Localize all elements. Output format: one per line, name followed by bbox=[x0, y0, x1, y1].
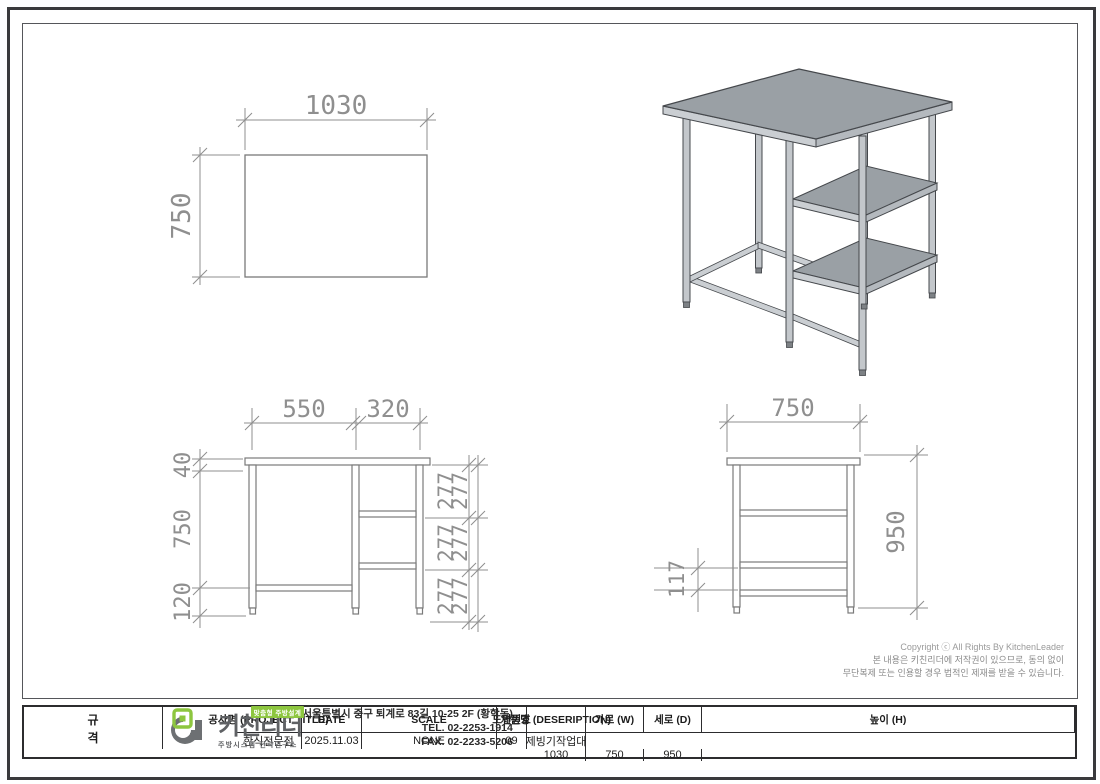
copyright-line3: 무단복제 또는 인용할 경우 법적인 제재를 받을 수 있습니다. bbox=[843, 667, 1064, 680]
logo-name: 키친리더 bbox=[218, 715, 302, 739]
address-line: 서울특별시 중구 퇴계로 83길 10-25 2F (황학동) bbox=[302, 707, 513, 721]
product-value: 제빙기작업대 bbox=[527, 733, 586, 749]
side-view: 750 950 117 bbox=[654, 394, 928, 620]
depth-value: 750 bbox=[586, 749, 644, 761]
brand-cell: 맞춤형 주방설계 키친리더 주방시스템 전략연구소 서울특별시 중구 퇴계로 8… bbox=[163, 707, 236, 749]
plan-depth-dim: 750 bbox=[167, 193, 197, 240]
spec-top: 규 bbox=[87, 711, 98, 728]
copyright-line1: Copyright ⓒ All Rights By KitchenLeader bbox=[843, 641, 1064, 654]
front-dim-277-c2: 277 bbox=[448, 577, 472, 615]
scale-value: NONE bbox=[362, 733, 497, 749]
depth-header: 세로 (D) bbox=[644, 707, 702, 733]
front-view: 550 320 40 750 120 277 277 277 277 277 2… bbox=[171, 395, 488, 632]
front-dim-277-a2: 277 bbox=[448, 472, 472, 510]
copyright-line2: 본 내용은 키친리더에 저작권이 있으므로, 동의 없이 bbox=[843, 654, 1064, 667]
kitchenleader-logo-icon bbox=[171, 706, 213, 750]
side-dim-750: 750 bbox=[771, 394, 814, 422]
drawing-no-value: 09 bbox=[497, 733, 527, 749]
spec-cell: 규 격 bbox=[24, 707, 163, 749]
product-header: 제품명 (DESERIPTION) bbox=[527, 707, 586, 733]
spec-bottom: 격 bbox=[87, 729, 98, 746]
width-value: 1030 bbox=[527, 749, 586, 761]
front-dim-277-b2: 277 bbox=[448, 524, 472, 562]
front-dim-320: 320 bbox=[366, 395, 409, 423]
iso-view bbox=[663, 69, 952, 376]
side-dim-117: 117 bbox=[665, 560, 689, 598]
front-dim-550: 550 bbox=[282, 395, 325, 423]
height-value: 950 bbox=[644, 749, 702, 761]
logo-text-block: 맞춤형 주방설계 키친리더 주방시스템 전략연구소 bbox=[218, 707, 302, 750]
drawing-sheet: 1030 750 bbox=[0, 0, 1100, 784]
width-header: 가로 (W) bbox=[586, 707, 644, 733]
title-block: 공사명 (PROJECT TITLE) DATE SCALE 도면번호 제품명 … bbox=[22, 705, 1077, 759]
side-dim-950: 950 bbox=[882, 510, 910, 553]
copyright-note: Copyright ⓒ All Rights By KitchenLeader … bbox=[843, 641, 1064, 680]
brand-logo: 맞춤형 주방설계 키친리더 주방시스템 전략연구소 bbox=[171, 706, 302, 750]
logo-badge: 맞춤형 주방설계 bbox=[251, 706, 305, 718]
date-value: 2025.11.03 bbox=[302, 733, 362, 749]
height-header: 높이 (H) bbox=[702, 707, 1075, 733]
plan-view: 1030 750 bbox=[167, 91, 436, 285]
plan-width-dim: 1030 bbox=[305, 91, 368, 121]
logo-subtitle: 주방시스템 전략연구소 bbox=[218, 740, 302, 750]
front-dim-40: 40 bbox=[171, 452, 196, 479]
front-dim-750: 750 bbox=[171, 509, 196, 549]
front-dim-120: 120 bbox=[171, 582, 196, 622]
